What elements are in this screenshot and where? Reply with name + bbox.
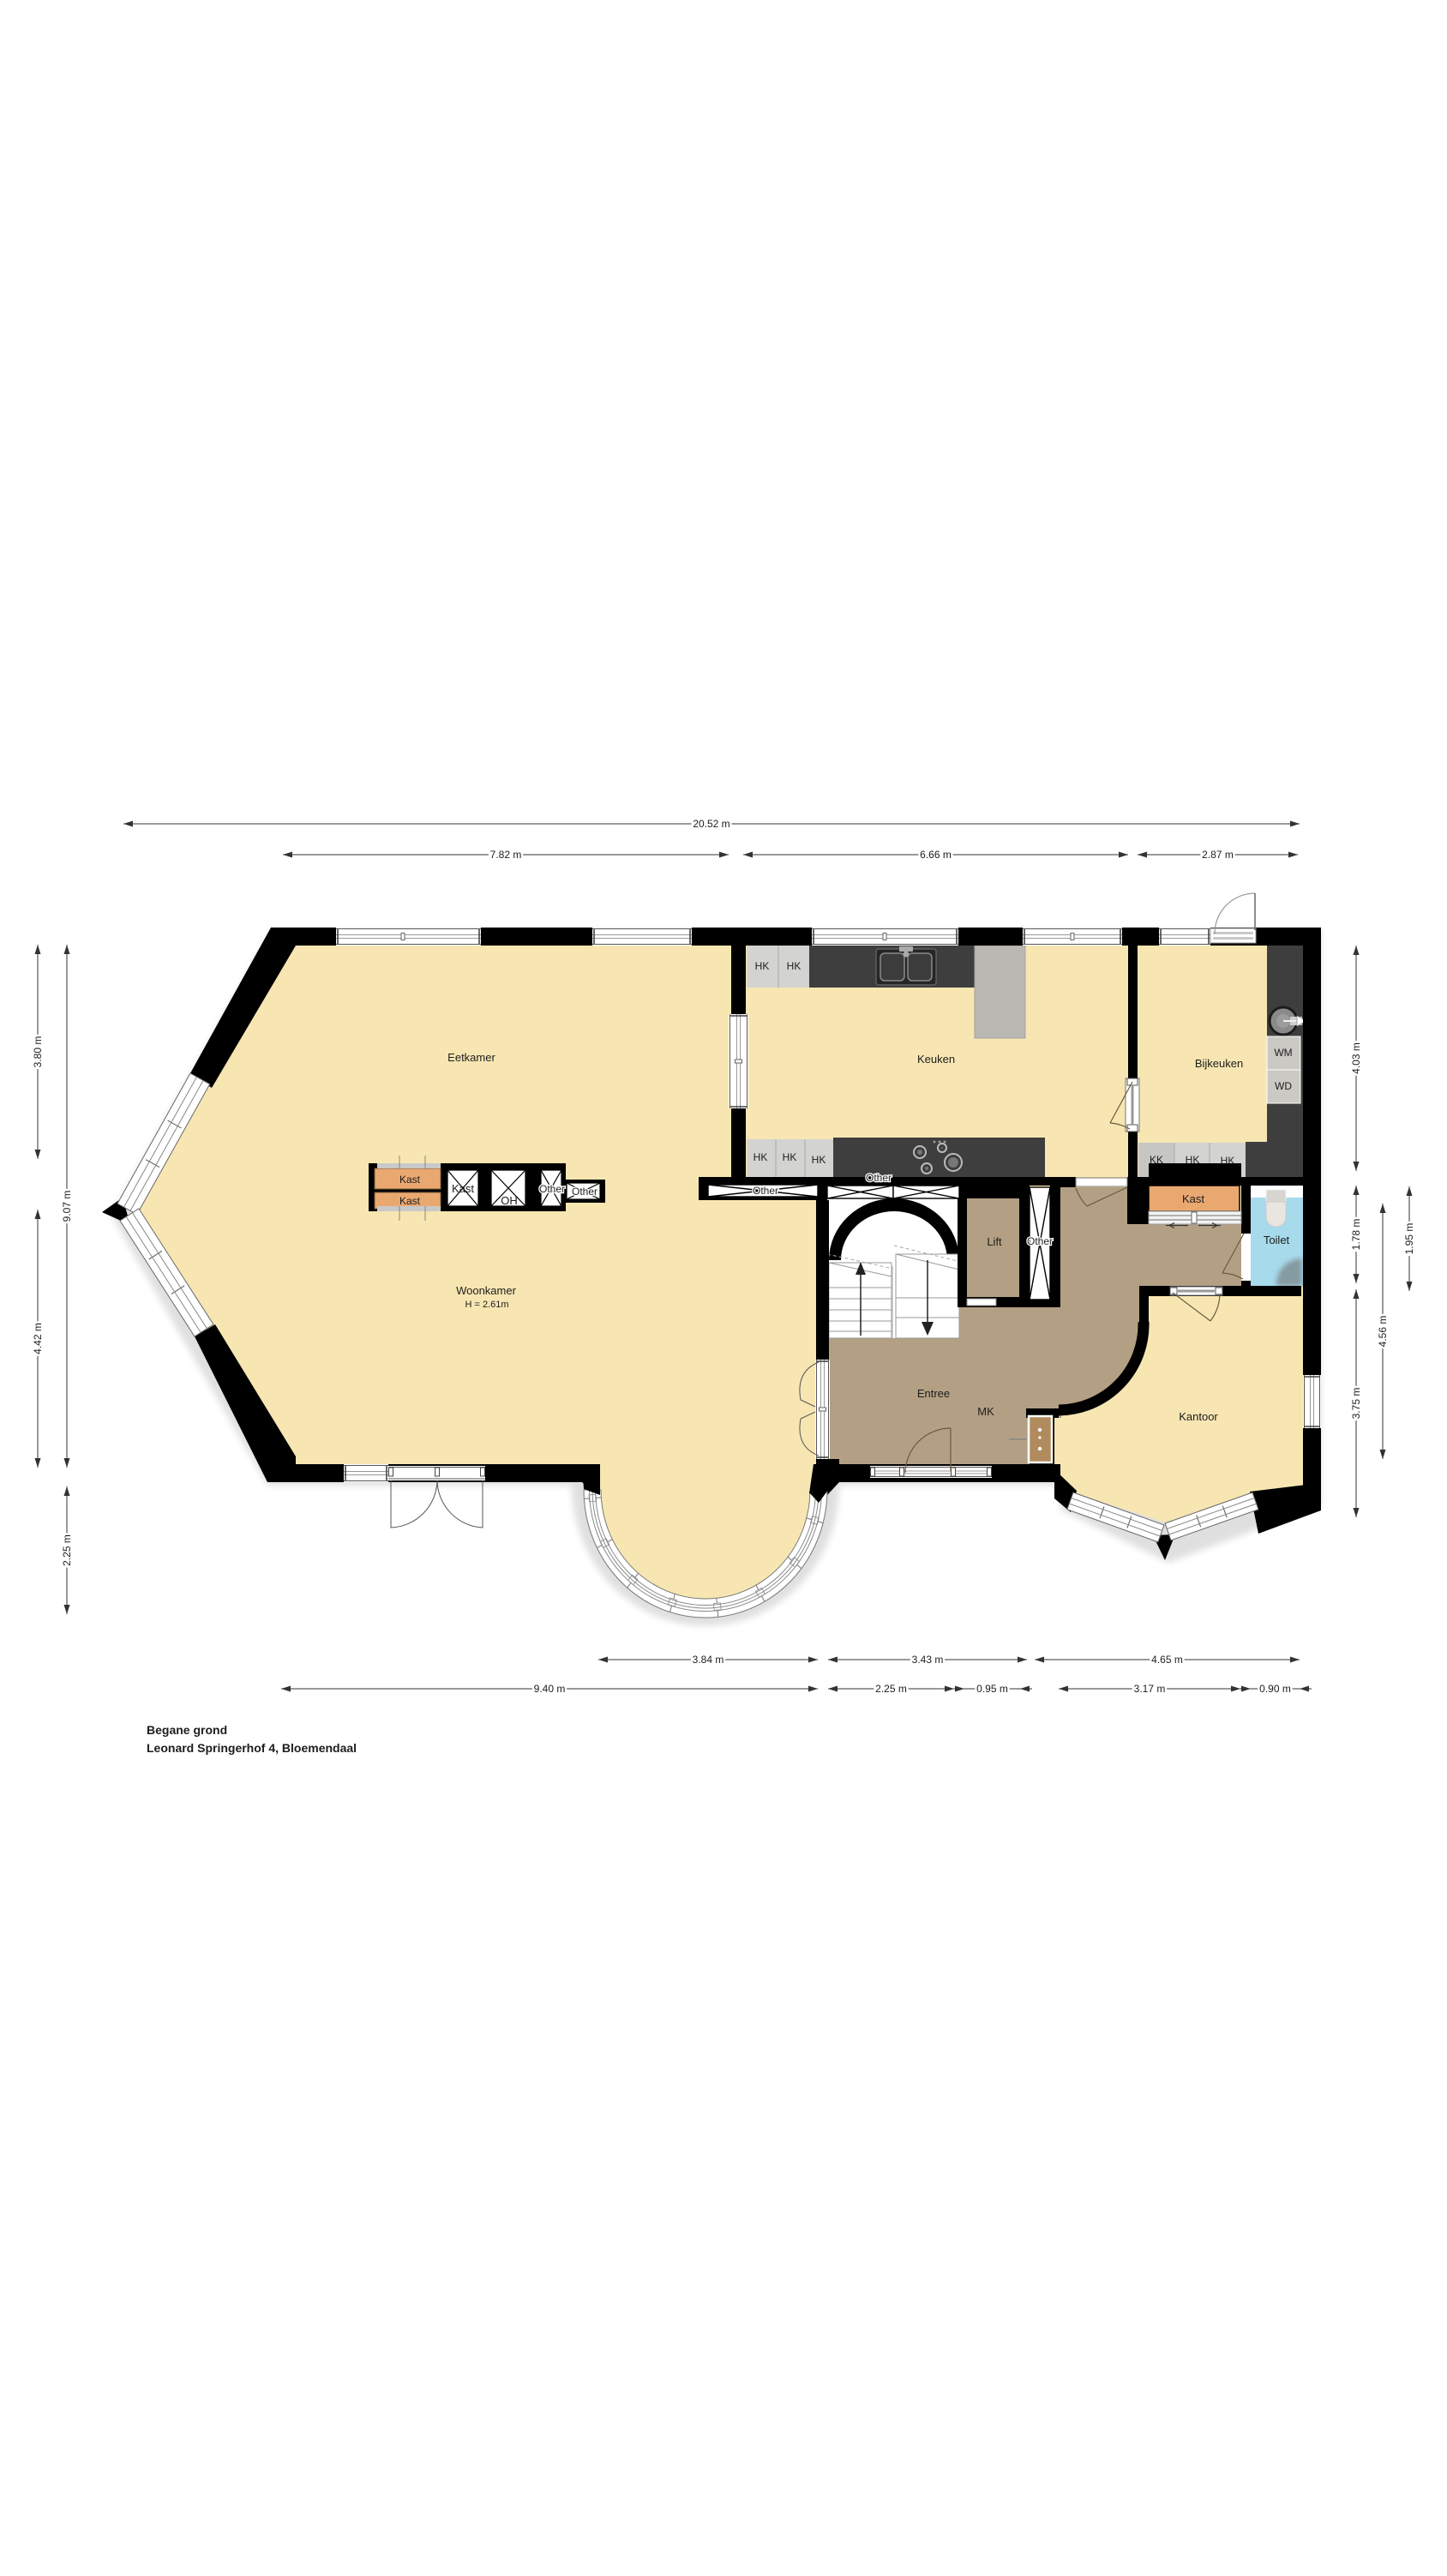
- svg-text:4.65 m: 4.65 m: [1151, 1654, 1183, 1666]
- svg-text:Other: Other: [753, 1185, 778, 1197]
- svg-text:2.87 m: 2.87 m: [1202, 849, 1234, 861]
- svg-text:Eetkamer: Eetkamer: [447, 1051, 495, 1064]
- svg-text:1.95 m: 1.95 m: [1403, 1223, 1415, 1255]
- svg-text:Leonard Springerhof 4, Bloemen: Leonard Springerhof 4, Bloemendaal: [147, 1741, 357, 1755]
- svg-text:Bijkeuken: Bijkeuken: [1195, 1057, 1243, 1070]
- svg-text:Keuken: Keuken: [917, 1053, 955, 1066]
- svg-text:HK: HK: [1186, 1154, 1200, 1166]
- svg-text:HK: HK: [1221, 1155, 1235, 1167]
- svg-text:7.82 m: 7.82 m: [490, 849, 522, 861]
- svg-text:OH: OH: [501, 1194, 518, 1207]
- svg-text:HK: HK: [754, 1151, 768, 1163]
- svg-text:Other: Other: [866, 1172, 892, 1184]
- svg-text:MK: MK: [977, 1405, 994, 1418]
- svg-text:6.66 m: 6.66 m: [920, 849, 952, 861]
- svg-text:Kast: Kast: [399, 1195, 421, 1207]
- svg-text:2.25 m: 2.25 m: [875, 1683, 907, 1695]
- svg-text:Other: Other: [539, 1183, 565, 1195]
- svg-text:Kast: Kast: [452, 1182, 474, 1195]
- svg-text:Toilet: Toilet: [1264, 1234, 1290, 1246]
- svg-text:Kantoor: Kantoor: [1179, 1410, 1218, 1423]
- svg-text:1.78 m: 1.78 m: [1350, 1219, 1362, 1251]
- svg-text:Kast: Kast: [399, 1174, 421, 1186]
- svg-text:20.52 m: 20.52 m: [693, 818, 730, 830]
- svg-text:HK: HK: [787, 960, 802, 972]
- svg-text:3.43 m: 3.43 m: [912, 1654, 944, 1666]
- svg-text:0.90 m: 0.90 m: [1259, 1683, 1291, 1695]
- svg-text:4.03 m: 4.03 m: [1350, 1042, 1362, 1074]
- svg-text:HK: HK: [755, 960, 770, 972]
- svg-text:2.25 m: 2.25 m: [61, 1534, 73, 1566]
- svg-text:Other: Other: [1027, 1235, 1053, 1247]
- svg-text:WM: WM: [1274, 1047, 1292, 1059]
- svg-text:HK: HK: [783, 1151, 797, 1163]
- svg-text:Other: Other: [572, 1186, 597, 1198]
- svg-text:9.40 m: 9.40 m: [534, 1683, 566, 1695]
- svg-text:0.95 m: 0.95 m: [976, 1683, 1008, 1695]
- svg-text:3.75 m: 3.75 m: [1350, 1388, 1362, 1420]
- svg-text:Kast: Kast: [1182, 1192, 1204, 1205]
- svg-text:3.80 m: 3.80 m: [32, 1036, 44, 1068]
- svg-text:3.84 m: 3.84 m: [693, 1654, 724, 1666]
- svg-text:KK: KK: [1150, 1154, 1163, 1166]
- svg-text:9.07 m: 9.07 m: [61, 1191, 73, 1222]
- svg-text:Lift: Lift: [987, 1235, 1002, 1248]
- svg-text:WD: WD: [1275, 1080, 1292, 1092]
- svg-text:HK: HK: [812, 1154, 826, 1166]
- svg-text:Woonkamer: Woonkamer: [456, 1284, 517, 1297]
- svg-text:4.42 m: 4.42 m: [32, 1323, 44, 1354]
- svg-text:Entree: Entree: [917, 1387, 950, 1400]
- svg-text:3.17 m: 3.17 m: [1134, 1683, 1166, 1695]
- svg-text:4.56 m: 4.56 m: [1377, 1316, 1389, 1348]
- svg-text:Begane grond: Begane grond: [147, 1723, 227, 1737]
- svg-text:H = 2.61m: H = 2.61m: [465, 1300, 508, 1310]
